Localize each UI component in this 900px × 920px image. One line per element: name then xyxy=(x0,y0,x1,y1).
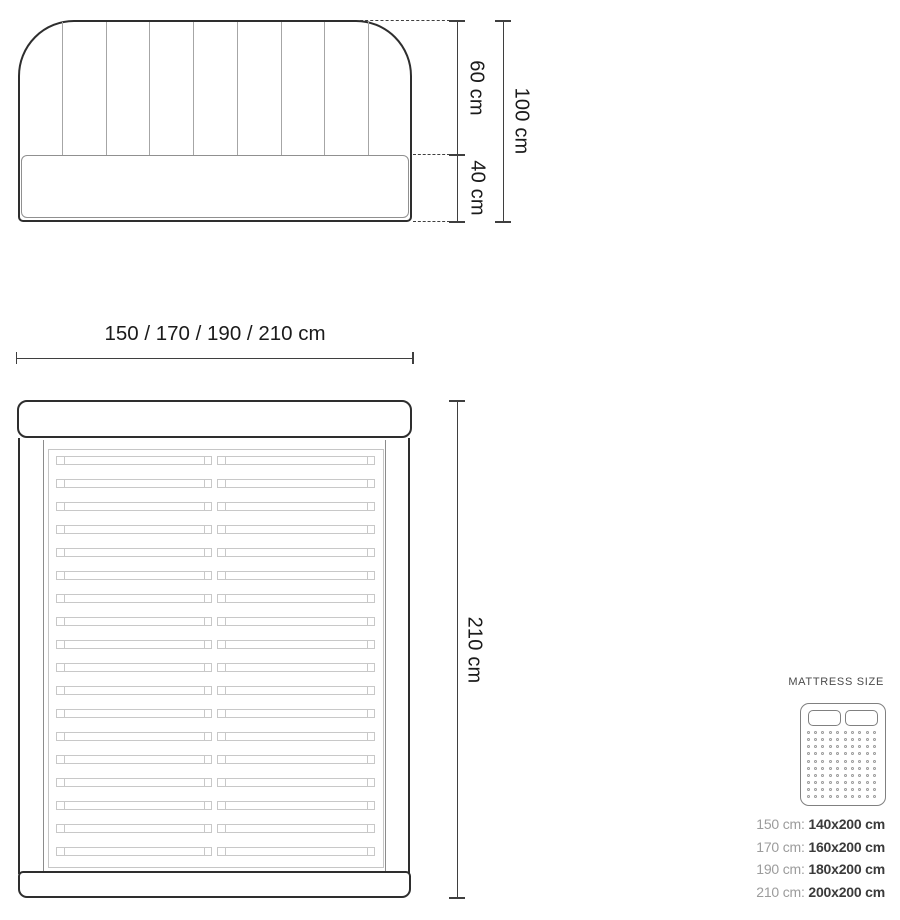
tufting-dot xyxy=(821,788,824,791)
slat-cap xyxy=(367,641,375,649)
tufting-dot xyxy=(836,745,839,748)
tufting-dot xyxy=(844,731,847,734)
tufting-dot xyxy=(866,781,869,784)
tufting-dot xyxy=(814,760,817,763)
slat-cap xyxy=(57,756,65,764)
slat xyxy=(56,525,212,535)
slat-cap xyxy=(367,526,375,534)
slat xyxy=(217,755,375,765)
slat xyxy=(56,571,212,581)
slat-cap xyxy=(218,480,226,488)
tufting-dot xyxy=(821,752,824,755)
slat-cap xyxy=(204,572,212,580)
tufting-dot xyxy=(814,738,817,741)
tufting-dot xyxy=(814,752,817,755)
tufting-dot xyxy=(807,760,810,763)
slat xyxy=(56,732,212,742)
tufting-dot xyxy=(821,738,824,741)
tufting-dot xyxy=(858,767,861,770)
slat-cap xyxy=(204,457,212,465)
tufting-dot xyxy=(807,774,810,777)
slat xyxy=(56,824,212,834)
tufting-dot xyxy=(866,795,869,798)
slat-cap xyxy=(57,779,65,787)
dim-label-210cm: 210 cm xyxy=(463,617,486,684)
slat-cap xyxy=(57,549,65,557)
slat-cap xyxy=(204,848,212,856)
tufting-dot xyxy=(821,731,824,734)
mattress-size-table: 150 cm: 140x200 cm 170 cm: 160x200 cm 19… xyxy=(756,813,885,903)
slat xyxy=(217,456,375,466)
tufting-dot xyxy=(829,731,832,734)
tufting-dot xyxy=(858,752,861,755)
tick xyxy=(449,897,465,899)
tufting-dot xyxy=(821,774,824,777)
tufting-dot xyxy=(844,738,847,741)
slat xyxy=(56,663,212,673)
slat-cap xyxy=(367,480,375,488)
tufting-dot xyxy=(858,731,861,734)
slat-cap xyxy=(57,503,65,511)
channel-line xyxy=(281,22,282,155)
slat-cap xyxy=(204,549,212,557)
tufting-dot xyxy=(873,745,876,748)
tufting-dot xyxy=(858,760,861,763)
tufting-dot xyxy=(836,731,839,734)
tufting-dot xyxy=(851,774,854,777)
tufting-dot xyxy=(814,767,817,770)
slat xyxy=(56,801,212,811)
tufting-dot xyxy=(821,760,824,763)
tufting-dot xyxy=(836,795,839,798)
slat xyxy=(56,778,212,788)
slat-cap xyxy=(204,825,212,833)
bed-base-front-outline xyxy=(21,155,409,218)
tufting-dot xyxy=(851,745,854,748)
channel-line xyxy=(62,22,63,155)
slat-cap xyxy=(367,710,375,718)
tufting-dot xyxy=(873,795,876,798)
tufting-dot xyxy=(844,781,847,784)
slat xyxy=(56,548,212,558)
slat-cap xyxy=(367,457,375,465)
tufting-dot xyxy=(873,731,876,734)
footboard-top-view xyxy=(18,871,411,898)
size-label: 190 cm: xyxy=(756,861,804,877)
tufting-dot xyxy=(873,760,876,763)
slat-cap xyxy=(218,710,226,718)
tufting-dot xyxy=(851,795,854,798)
slat-cap xyxy=(367,848,375,856)
tick xyxy=(449,221,465,223)
slat-cap xyxy=(57,572,65,580)
tufting-dot xyxy=(844,795,847,798)
tufting-dot xyxy=(873,781,876,784)
tufting-dot xyxy=(866,760,869,763)
slat xyxy=(56,456,212,466)
size-row: 150 cm: 140x200 cm xyxy=(756,813,885,836)
slat-cap xyxy=(204,595,212,603)
tufting-dot xyxy=(851,752,854,755)
tufting-dot xyxy=(858,774,861,777)
tufting-dot xyxy=(814,788,817,791)
channel-line xyxy=(237,22,238,155)
slat-cap xyxy=(57,848,65,856)
slat-cap xyxy=(367,779,375,787)
tufting-dot xyxy=(829,774,832,777)
slat-cap xyxy=(218,595,226,603)
dim-label-60cm: 60 cm xyxy=(465,60,488,115)
slat-cap xyxy=(57,687,65,695)
tufting-dot xyxy=(821,781,824,784)
tufting-dot xyxy=(807,788,810,791)
tufting-dot xyxy=(873,774,876,777)
tufting-dot xyxy=(851,781,854,784)
dashed-projection-bottom xyxy=(413,221,450,222)
slat xyxy=(217,594,375,604)
mattress-tufting-dots xyxy=(807,731,882,802)
slat-cap xyxy=(204,618,212,626)
size-value: 160x200 cm xyxy=(808,839,885,855)
mattress-size-title: MATTRESS SIZE xyxy=(788,676,884,688)
slat xyxy=(217,502,375,512)
slat-cap xyxy=(204,733,212,741)
slat-cap xyxy=(218,618,226,626)
tufting-dot xyxy=(844,767,847,770)
tufting-dot xyxy=(873,767,876,770)
slat xyxy=(56,640,212,650)
slat-cap xyxy=(204,641,212,649)
slat-cap xyxy=(218,457,226,465)
size-value: 180x200 cm xyxy=(808,861,885,877)
tufting-dot xyxy=(873,752,876,755)
tufting-dot xyxy=(858,738,861,741)
slat-cap xyxy=(367,549,375,557)
tick xyxy=(449,400,465,402)
slat-cap xyxy=(204,526,212,534)
slat-cap xyxy=(218,641,226,649)
tufting-dot xyxy=(851,760,854,763)
tufting-dot xyxy=(866,788,869,791)
size-label: 210 cm: xyxy=(756,884,804,900)
tufting-dot xyxy=(866,731,869,734)
slat-cap xyxy=(218,802,226,810)
tufting-dot xyxy=(807,781,810,784)
slat-cap xyxy=(367,595,375,603)
slat-cap xyxy=(218,756,226,764)
slat-cap xyxy=(218,733,226,741)
slat xyxy=(56,617,212,627)
dimension-line-length xyxy=(457,401,458,898)
slat-cap xyxy=(204,779,212,787)
dashed-projection-seam xyxy=(413,154,450,155)
slat xyxy=(217,663,375,673)
slat-cap xyxy=(367,664,375,672)
tufting-dot xyxy=(866,774,869,777)
channel-line xyxy=(149,22,150,155)
slat-area xyxy=(48,449,384,868)
tufting-dot xyxy=(829,781,832,784)
slat-cap xyxy=(204,756,212,764)
tufting-dot xyxy=(814,795,817,798)
tufting-dot xyxy=(814,774,817,777)
slat-cap xyxy=(57,733,65,741)
tufting-dot xyxy=(866,752,869,755)
slat-cap xyxy=(57,480,65,488)
tufting-dot xyxy=(844,774,847,777)
tufting-dot xyxy=(807,731,810,734)
slat-cap xyxy=(367,503,375,511)
tufting-dot xyxy=(858,781,861,784)
dim-label-40cm: 40 cm xyxy=(466,160,489,215)
slat-cap xyxy=(218,687,226,695)
slat-cap xyxy=(57,825,65,833)
tufting-dot xyxy=(858,745,861,748)
slat-cap xyxy=(204,480,212,488)
tufting-dot xyxy=(844,752,847,755)
slat xyxy=(217,686,375,696)
slat xyxy=(217,571,375,581)
channel-line xyxy=(368,22,369,155)
slat-cap xyxy=(367,733,375,741)
slat-cap xyxy=(204,687,212,695)
tufting-dot xyxy=(873,738,876,741)
size-row: 210 cm: 200x200 cm xyxy=(756,881,885,904)
slat-cap xyxy=(218,503,226,511)
size-label: 150 cm: xyxy=(756,816,804,832)
slat-cap xyxy=(367,687,375,695)
tick xyxy=(412,352,414,364)
slat xyxy=(217,640,375,650)
slat-cap xyxy=(218,572,226,580)
slat-cap xyxy=(57,641,65,649)
slat xyxy=(56,686,212,696)
slat xyxy=(217,778,375,788)
slat-cap xyxy=(57,802,65,810)
slat-cap xyxy=(204,802,212,810)
tick xyxy=(449,20,465,22)
tufting-dot xyxy=(821,795,824,798)
slat xyxy=(217,548,375,558)
tufting-dot xyxy=(821,767,824,770)
tufting-dot xyxy=(836,774,839,777)
rail-inner-line-left xyxy=(43,440,44,871)
slat xyxy=(217,617,375,627)
tufting-dot xyxy=(851,738,854,741)
tufting-dot xyxy=(807,767,810,770)
mattress-icon xyxy=(800,703,886,806)
bed-dimensions-diagram: 60 cm 40 cm 100 cm 150 / 170 / 190 / 210… xyxy=(0,0,900,920)
slat-cap xyxy=(204,710,212,718)
slat xyxy=(217,732,375,742)
tufting-dot xyxy=(836,767,839,770)
tufting-dot xyxy=(807,745,810,748)
slat xyxy=(56,847,212,857)
tufting-dot xyxy=(844,745,847,748)
slat xyxy=(217,824,375,834)
pillow-icon xyxy=(808,710,841,726)
tufting-dot xyxy=(829,745,832,748)
tick xyxy=(16,352,18,364)
slat-cap xyxy=(367,618,375,626)
slat xyxy=(217,479,375,489)
headboard-top-view xyxy=(17,400,412,438)
slat-cap xyxy=(218,549,226,557)
tufting-dot xyxy=(844,788,847,791)
slat-cap xyxy=(204,503,212,511)
slat-cap xyxy=(367,825,375,833)
tick xyxy=(495,221,511,223)
tufting-dot xyxy=(829,738,832,741)
size-label: 170 cm: xyxy=(756,839,804,855)
slat xyxy=(217,847,375,857)
slat xyxy=(217,801,375,811)
slat-cap xyxy=(218,825,226,833)
slat-cap xyxy=(57,710,65,718)
tufting-dot xyxy=(807,795,810,798)
tufting-dot xyxy=(814,745,817,748)
dim-label-width-options: 150 / 170 / 190 / 210 cm xyxy=(104,322,325,346)
tufting-dot xyxy=(829,752,832,755)
size-value: 200x200 cm xyxy=(808,884,885,900)
slat-cap xyxy=(57,457,65,465)
slat-cap xyxy=(204,664,212,672)
channel-line xyxy=(324,22,325,155)
slat-cap xyxy=(57,526,65,534)
slat xyxy=(217,525,375,535)
tufting-dot xyxy=(858,795,861,798)
tick xyxy=(495,20,511,22)
tufting-dot xyxy=(814,781,817,784)
tufting-dot xyxy=(836,752,839,755)
slat xyxy=(217,709,375,719)
size-value: 140x200 cm xyxy=(808,816,885,832)
rail-inner-line-right xyxy=(385,440,386,871)
tufting-dot xyxy=(829,767,832,770)
tufting-dot xyxy=(807,752,810,755)
slat xyxy=(56,502,212,512)
dim-label-100cm: 100 cm xyxy=(510,88,533,155)
slat-cap xyxy=(218,779,226,787)
tufting-dot xyxy=(858,788,861,791)
slat-cap xyxy=(218,848,226,856)
tufting-dot xyxy=(866,738,869,741)
dashed-projection-top xyxy=(360,20,450,21)
pillow-icon xyxy=(845,710,878,726)
tufting-dot xyxy=(866,767,869,770)
tufting-dot xyxy=(866,745,869,748)
tufting-dot xyxy=(814,731,817,734)
dimension-line-60-40 xyxy=(457,21,458,222)
tufting-dot xyxy=(829,795,832,798)
dimension-line-100 xyxy=(503,21,504,222)
slat xyxy=(56,594,212,604)
tufting-dot xyxy=(829,760,832,763)
channel-line xyxy=(106,22,107,155)
dimension-line-width xyxy=(16,358,413,359)
tufting-dot xyxy=(836,781,839,784)
slat-cap xyxy=(218,526,226,534)
size-row: 170 cm: 160x200 cm xyxy=(756,836,885,859)
channel-line xyxy=(193,22,194,155)
slat xyxy=(56,709,212,719)
slat-cap xyxy=(218,664,226,672)
slat-cap xyxy=(57,618,65,626)
tufting-dot xyxy=(873,788,876,791)
slat xyxy=(56,479,212,489)
tufting-dot xyxy=(821,745,824,748)
tufting-dot xyxy=(807,738,810,741)
slat-cap xyxy=(367,572,375,580)
slat-cap xyxy=(367,756,375,764)
tufting-dot xyxy=(829,788,832,791)
tufting-dot xyxy=(836,738,839,741)
slat-cap xyxy=(57,664,65,672)
tick xyxy=(449,154,465,156)
tufting-dot xyxy=(851,788,854,791)
tufting-dot xyxy=(851,767,854,770)
tufting-dot xyxy=(836,788,839,791)
tufting-dot xyxy=(836,760,839,763)
slat xyxy=(56,755,212,765)
slat-cap xyxy=(57,595,65,603)
slat-cap xyxy=(367,802,375,810)
tufting-dot xyxy=(851,731,854,734)
size-row: 190 cm: 180x200 cm xyxy=(756,858,885,881)
tufting-dot xyxy=(844,760,847,763)
